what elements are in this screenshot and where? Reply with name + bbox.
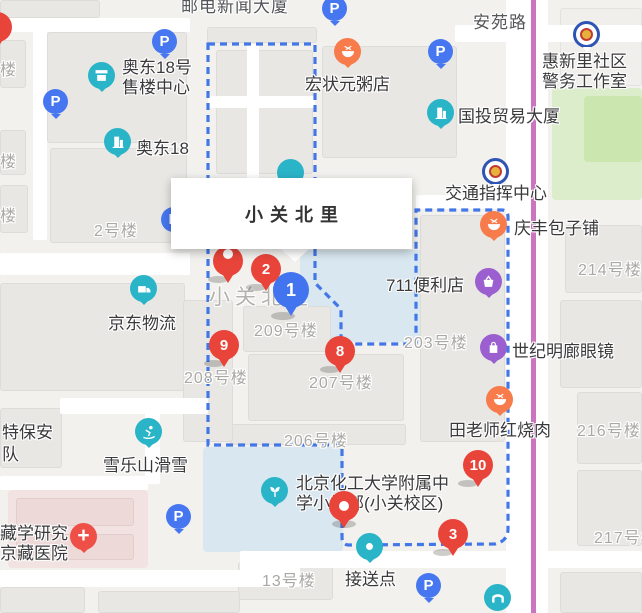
building-label-clipped: 楼 [0, 56, 17, 80]
poi-label[interactable]: 北京化工大学附属中学小学部(小关校区) [296, 474, 449, 514]
food-bowl-icon[interactable] [480, 211, 507, 238]
marker-10[interactable]: 10 [463, 450, 493, 480]
poi-label[interactable]: 接送点 [345, 570, 396, 590]
bridge-icon[interactable] [484, 584, 511, 611]
parking-icon[interactable]: P [43, 89, 68, 114]
poi-label[interactable]: 711便利店 [386, 276, 464, 296]
parking-icon[interactable]: P [166, 504, 191, 529]
hospital-cross-icon[interactable]: + [70, 523, 97, 550]
poi-label[interactable]: 奥东18 [136, 139, 189, 159]
building-label: 214号楼 [578, 256, 642, 280]
marker-school-pin[interactable] [329, 491, 359, 521]
skier-icon[interactable] [135, 418, 162, 445]
poi-label-clipped: 特保安 [2, 423, 53, 443]
poi-label[interactable]: 雪乐山滑雪 [103, 456, 188, 476]
parking-icon[interactable]: P [428, 39, 453, 64]
poi-label[interactable]: 京东物流 [108, 314, 176, 334]
poi-label[interactable]: 藏学研究京藏医院 [0, 524, 68, 564]
marker-3[interactable]: 3 [438, 519, 468, 549]
road-label: 安苑路 [473, 8, 527, 33]
area-callout[interactable]: 小关北里 [171, 178, 412, 249]
map-canvas[interactable]: 邮电新闻大厦 安苑路 2号楼 209号楼 208号楼 207号楼 206号楼 2… [0, 0, 642, 613]
shopping-bag-icon[interactable] [480, 334, 507, 361]
marker-9[interactable]: 9 [209, 330, 239, 360]
marker-2[interactable]: 2 [251, 254, 281, 284]
building-label: 206号楼 [284, 427, 348, 451]
police-badge-icon[interactable] [482, 158, 509, 185]
parking-icon[interactable]: P [416, 573, 441, 598]
storefront-icon[interactable] [88, 62, 115, 89]
shopping-basket-icon[interactable] [475, 268, 502, 295]
poi-label[interactable]: 国投贸易大厦 [458, 107, 560, 127]
delivery-truck-icon[interactable] [130, 275, 157, 302]
area-callout-title: 小关北里 [238, 201, 345, 227]
poi-label-clipped: 队 [2, 445, 19, 465]
building-label: 208号楼 [184, 364, 248, 388]
school-sprout-icon[interactable] [261, 477, 288, 504]
pickup-dot-icon[interactable] [356, 533, 383, 560]
building-label-clipped: 楼 [0, 148, 17, 172]
building-label: 203号楼 [404, 329, 468, 353]
office-building-icon[interactable] [427, 99, 454, 126]
poi-label[interactable]: 世纪明廊眼镜 [512, 342, 614, 362]
marker-8[interactable]: 8 [325, 336, 355, 366]
marker-hidden-behind-callout[interactable] [213, 246, 243, 276]
food-bowl-icon[interactable] [334, 38, 361, 65]
poi-label[interactable]: 庆丰包子铺 [514, 219, 599, 239]
police-badge-icon[interactable] [573, 21, 600, 48]
food-bowl-icon[interactable] [486, 386, 513, 413]
poi-label[interactable]: 奥东18号售楼中心 [122, 58, 192, 98]
office-building-icon[interactable] [104, 128, 131, 155]
building-label-clipped: 楼 [0, 202, 17, 226]
building-label: 邮电新闻大厦 [181, 0, 289, 17]
poi-label[interactable]: 宏状元粥店 [305, 75, 390, 95]
parking-icon[interactable]: P [152, 29, 177, 54]
callout-tail [281, 249, 309, 262]
poi-label[interactable]: 田老师红烧肉 [449, 421, 551, 441]
building-label: 217号楼 [594, 524, 642, 548]
building-label: 216号楼 [577, 417, 641, 441]
poi-label[interactable]: 惠新里社区警务工作室 [542, 52, 627, 92]
building-label: 2号楼 [94, 217, 138, 241]
building-label: 13号楼 [262, 567, 316, 591]
